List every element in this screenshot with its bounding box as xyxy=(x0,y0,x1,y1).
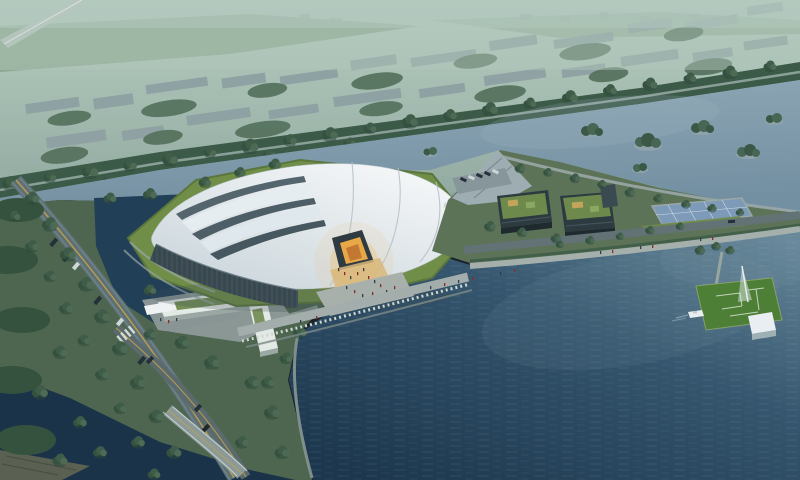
roof-patch xyxy=(572,201,583,208)
aerial-rendering xyxy=(0,0,800,480)
horizon-fog-top xyxy=(0,0,800,28)
car xyxy=(728,220,735,223)
roof-patch xyxy=(508,199,519,206)
roof-patch xyxy=(526,201,536,208)
rendering-canvas xyxy=(0,0,800,480)
roof-patch xyxy=(590,206,599,213)
boat-cabin xyxy=(693,311,697,313)
